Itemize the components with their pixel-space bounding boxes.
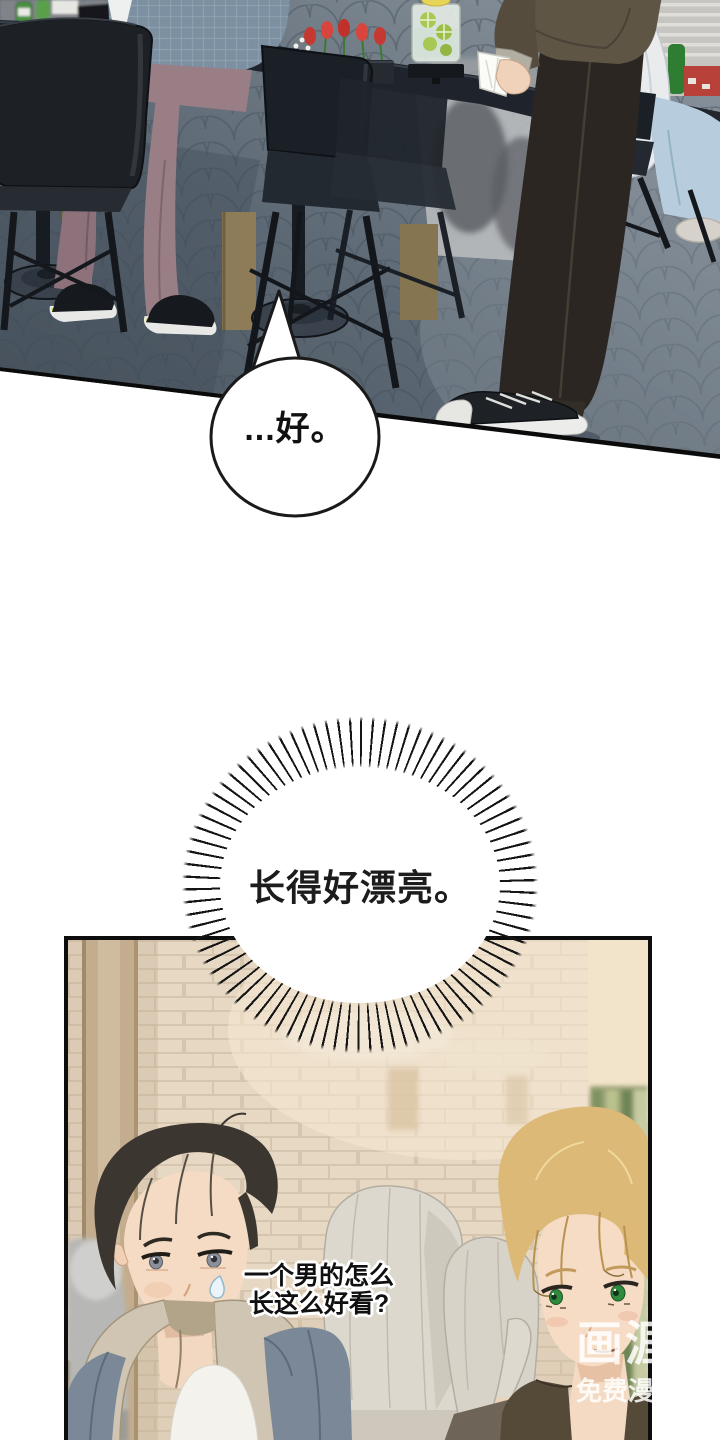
green-bottle	[36, 0, 50, 20]
burst-text: 长得好漂亮。	[178, 713, 542, 1057]
watermark: 画涯 免费漫画	[576, 1318, 680, 1406]
green-bottle	[668, 44, 685, 94]
drink-dispenser	[408, 0, 464, 84]
denim-jacket	[264, 1327, 352, 1440]
comic-page: ...好。	[0, 0, 720, 1440]
speech-bubble: ...好。	[200, 285, 390, 525]
burst-bubble: 长得好漂亮。	[178, 713, 542, 1057]
watermark-tagline: 免费漫画	[576, 1376, 680, 1406]
watermark-brand: 画涯	[576, 1318, 680, 1370]
thought-caption: 一个男的怎么 长这么好看?	[212, 1262, 426, 1318]
thought-line-2: 长这么好看?	[212, 1290, 426, 1318]
thought-line-1: 一个男的怎么	[212, 1262, 426, 1290]
speech-bubble-text: ...好。	[200, 401, 390, 450]
